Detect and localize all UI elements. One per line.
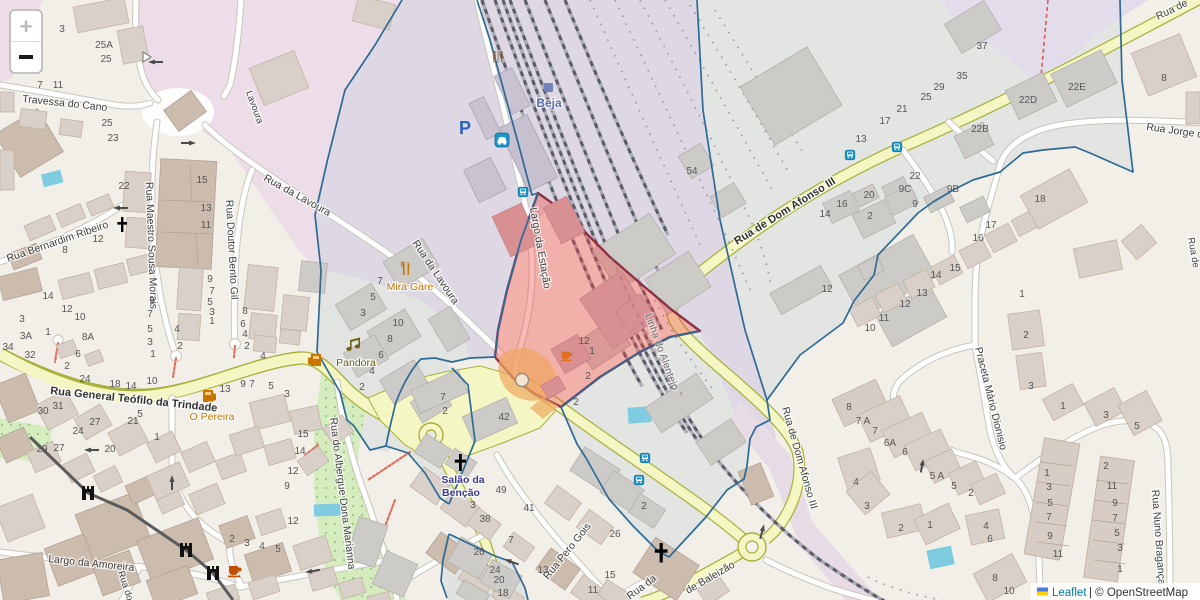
svg-text:6: 6 <box>987 534 993 545</box>
svg-text:22: 22 <box>118 181 130 192</box>
svg-text:54: 54 <box>686 166 698 177</box>
svg-text:4: 4 <box>259 541 265 552</box>
svg-text:25: 25 <box>100 54 112 65</box>
svg-text:P: P <box>459 118 471 138</box>
svg-text:10: 10 <box>146 376 158 387</box>
svg-text:7: 7 <box>37 80 43 91</box>
svg-text:9: 9 <box>1047 531 1053 542</box>
svg-text:16: 16 <box>972 233 984 244</box>
svg-text:13: 13 <box>219 384 231 395</box>
svg-text:16: 16 <box>836 199 848 210</box>
svg-text:| © OpenStreetMap: | © OpenStreetMap <box>1089 587 1188 599</box>
svg-text:2: 2 <box>573 397 579 408</box>
svg-text:5: 5 <box>370 292 376 303</box>
svg-text:37: 37 <box>976 41 988 52</box>
svg-text:2: 2 <box>641 501 647 512</box>
svg-text:3: 3 <box>19 314 25 325</box>
svg-text:5: 5 <box>268 381 274 392</box>
svg-text:34: 34 <box>2 342 14 353</box>
svg-text:5: 5 <box>275 544 281 555</box>
svg-text:3A: 3A <box>20 331 33 342</box>
svg-text:7: 7 <box>872 426 878 437</box>
svg-text:5: 5 <box>1134 421 1140 432</box>
svg-text:27: 27 <box>53 443 65 454</box>
svg-text:5: 5 <box>1114 528 1120 539</box>
svg-text:18: 18 <box>1034 194 1046 205</box>
svg-text:6A: 6A <box>884 438 897 449</box>
svg-text:12: 12 <box>578 336 590 347</box>
svg-text:9: 9 <box>1112 498 1118 509</box>
svg-text:8: 8 <box>992 573 998 584</box>
svg-text:2: 2 <box>442 406 448 417</box>
svg-text:7: 7 <box>147 309 153 320</box>
svg-text:9C: 9C <box>899 184 912 195</box>
svg-text:10: 10 <box>1003 586 1015 597</box>
svg-text:1: 1 <box>1019 289 1025 300</box>
svg-text:21: 21 <box>896 104 908 115</box>
svg-text:2: 2 <box>244 341 250 352</box>
svg-text:20: 20 <box>493 575 505 586</box>
svg-text:11: 11 <box>879 313 890 324</box>
svg-text:2: 2 <box>1023 330 1029 341</box>
svg-text:27: 27 <box>89 417 101 428</box>
svg-text:9: 9 <box>912 199 918 210</box>
svg-text:11: 11 <box>53 80 64 91</box>
svg-text:42: 42 <box>498 412 510 423</box>
svg-text:2: 2 <box>585 371 591 382</box>
svg-text:1: 1 <box>150 349 156 360</box>
svg-text:+: + <box>20 14 33 39</box>
svg-text:9: 9 <box>240 379 246 390</box>
svg-text:6: 6 <box>378 350 384 361</box>
svg-text:30: 30 <box>37 406 49 417</box>
svg-text:2: 2 <box>867 211 873 222</box>
svg-text:8: 8 <box>62 245 68 256</box>
svg-text:3: 3 <box>147 337 153 348</box>
svg-text:13: 13 <box>916 288 928 299</box>
svg-text:8: 8 <box>846 402 852 413</box>
svg-text:2: 2 <box>1103 461 1109 472</box>
svg-text:3: 3 <box>360 308 366 319</box>
svg-text:31: 31 <box>52 401 64 412</box>
svg-text:5: 5 <box>951 481 957 492</box>
svg-text:15: 15 <box>297 429 309 440</box>
svg-text:1: 1 <box>1044 468 1050 479</box>
svg-text:49: 49 <box>495 485 507 496</box>
svg-text:Mira Gare: Mira Gare <box>387 281 434 293</box>
svg-text:7: 7 <box>209 286 215 297</box>
svg-text:3: 3 <box>244 538 250 549</box>
svg-text:24: 24 <box>72 426 84 437</box>
svg-text:12: 12 <box>287 466 299 477</box>
svg-text:12: 12 <box>287 516 299 527</box>
svg-text:9: 9 <box>284 481 290 492</box>
svg-text:15: 15 <box>604 570 616 581</box>
svg-text:Salão da: Salão da <box>441 474 484 486</box>
svg-text:3: 3 <box>1103 410 1109 421</box>
svg-text:10: 10 <box>74 312 86 323</box>
svg-text:12: 12 <box>899 299 911 310</box>
svg-text:1: 1 <box>209 316 215 327</box>
svg-text:14: 14 <box>42 291 54 302</box>
svg-text:20: 20 <box>104 444 116 455</box>
svg-text:15: 15 <box>196 175 208 186</box>
svg-text:25A: 25A <box>95 40 113 51</box>
svg-text:4: 4 <box>174 324 180 335</box>
svg-text:11: 11 <box>1053 549 1064 560</box>
svg-text:24: 24 <box>79 374 91 385</box>
svg-text:10: 10 <box>392 318 404 329</box>
svg-text:9: 9 <box>207 274 213 285</box>
svg-text:13: 13 <box>855 134 867 145</box>
svg-text:7 A: 7 A <box>856 416 871 427</box>
svg-text:Beja: Beja <box>536 96 562 110</box>
svg-text:23: 23 <box>107 133 119 144</box>
svg-text:18: 18 <box>109 379 121 390</box>
svg-text:8: 8 <box>387 334 393 345</box>
svg-text:13: 13 <box>537 565 549 576</box>
svg-text:6: 6 <box>902 447 908 458</box>
svg-text:4: 4 <box>853 477 859 488</box>
svg-text:25: 25 <box>101 118 113 129</box>
svg-text:1: 1 <box>154 432 160 443</box>
svg-text:Benção: Benção <box>442 487 480 499</box>
svg-text:14: 14 <box>294 446 306 457</box>
svg-text:8: 8 <box>1161 73 1167 84</box>
svg-text:22E: 22E <box>1068 82 1086 93</box>
svg-text:3: 3 <box>1117 543 1123 554</box>
svg-text:12: 12 <box>821 284 833 295</box>
svg-text:17: 17 <box>985 220 997 231</box>
svg-text:26: 26 <box>473 547 485 558</box>
svg-text:2: 2 <box>64 361 70 372</box>
svg-text:2: 2 <box>898 523 904 534</box>
svg-text:41: 41 <box>523 503 535 514</box>
svg-text:5: 5 <box>137 409 143 420</box>
svg-text:4: 4 <box>260 351 266 362</box>
svg-text:7: 7 <box>249 379 255 390</box>
svg-text:1: 1 <box>589 346 595 357</box>
svg-text:8A: 8A <box>82 332 95 343</box>
svg-text:14: 14 <box>930 270 942 281</box>
svg-text:4: 4 <box>369 366 375 377</box>
svg-text:29: 29 <box>36 444 48 455</box>
svg-text:7: 7 <box>1046 512 1052 523</box>
svg-text:2: 2 <box>359 382 365 393</box>
svg-text:15: 15 <box>949 263 961 274</box>
svg-text:3: 3 <box>59 24 65 35</box>
svg-text:7: 7 <box>440 392 446 403</box>
svg-text:2: 2 <box>229 534 235 545</box>
svg-text:1: 1 <box>1060 401 1066 412</box>
svg-text:12: 12 <box>92 234 104 245</box>
svg-text:3: 3 <box>284 389 290 400</box>
svg-text:9: 9 <box>149 296 155 307</box>
svg-text:5 A: 5 A <box>930 471 945 482</box>
svg-text:35: 35 <box>956 71 968 82</box>
svg-text:2: 2 <box>968 488 974 499</box>
svg-text:5: 5 <box>1047 498 1053 509</box>
svg-text:3: 3 <box>470 500 476 511</box>
svg-text:26: 26 <box>609 529 621 540</box>
svg-text:1: 1 <box>1117 564 1123 575</box>
svg-text:O Pereira: O Pereira <box>190 411 235 423</box>
svg-text:11: 11 <box>201 220 212 231</box>
svg-text:11: 11 <box>588 585 599 596</box>
svg-text:4: 4 <box>983 521 989 532</box>
svg-text:18: 18 <box>497 588 509 599</box>
svg-text:4: 4 <box>242 329 248 340</box>
svg-text:7: 7 <box>508 535 514 546</box>
svg-text:11: 11 <box>1107 481 1118 492</box>
svg-text:22D: 22D <box>1019 95 1037 106</box>
svg-text:14: 14 <box>125 381 137 392</box>
svg-text:7: 7 <box>1112 513 1118 524</box>
svg-text:10: 10 <box>864 323 876 334</box>
svg-text:29: 29 <box>933 82 945 93</box>
svg-text:1: 1 <box>45 327 51 338</box>
svg-text:Leaflet: Leaflet <box>1052 587 1087 599</box>
svg-text:1: 1 <box>927 520 933 531</box>
svg-text:13: 13 <box>200 203 212 214</box>
svg-text:3: 3 <box>1028 381 1034 392</box>
svg-text:32: 32 <box>24 350 36 361</box>
svg-text:22B: 22B <box>971 124 989 135</box>
svg-text:3: 3 <box>1046 482 1052 493</box>
svg-text:22: 22 <box>909 171 921 182</box>
svg-text:25: 25 <box>920 92 932 103</box>
svg-text:12: 12 <box>61 304 73 315</box>
svg-text:14: 14 <box>819 209 831 220</box>
svg-text:5: 5 <box>147 324 153 335</box>
svg-text:2: 2 <box>177 341 183 352</box>
svg-text:17: 17 <box>879 116 891 127</box>
svg-text:3: 3 <box>864 501 870 512</box>
svg-text:20: 20 <box>863 190 875 201</box>
svg-text:6: 6 <box>75 349 81 360</box>
svg-text:8: 8 <box>242 306 248 317</box>
svg-text:7: 7 <box>377 276 383 287</box>
svg-text:9B: 9B <box>947 184 960 195</box>
svg-text:38: 38 <box>479 514 491 525</box>
